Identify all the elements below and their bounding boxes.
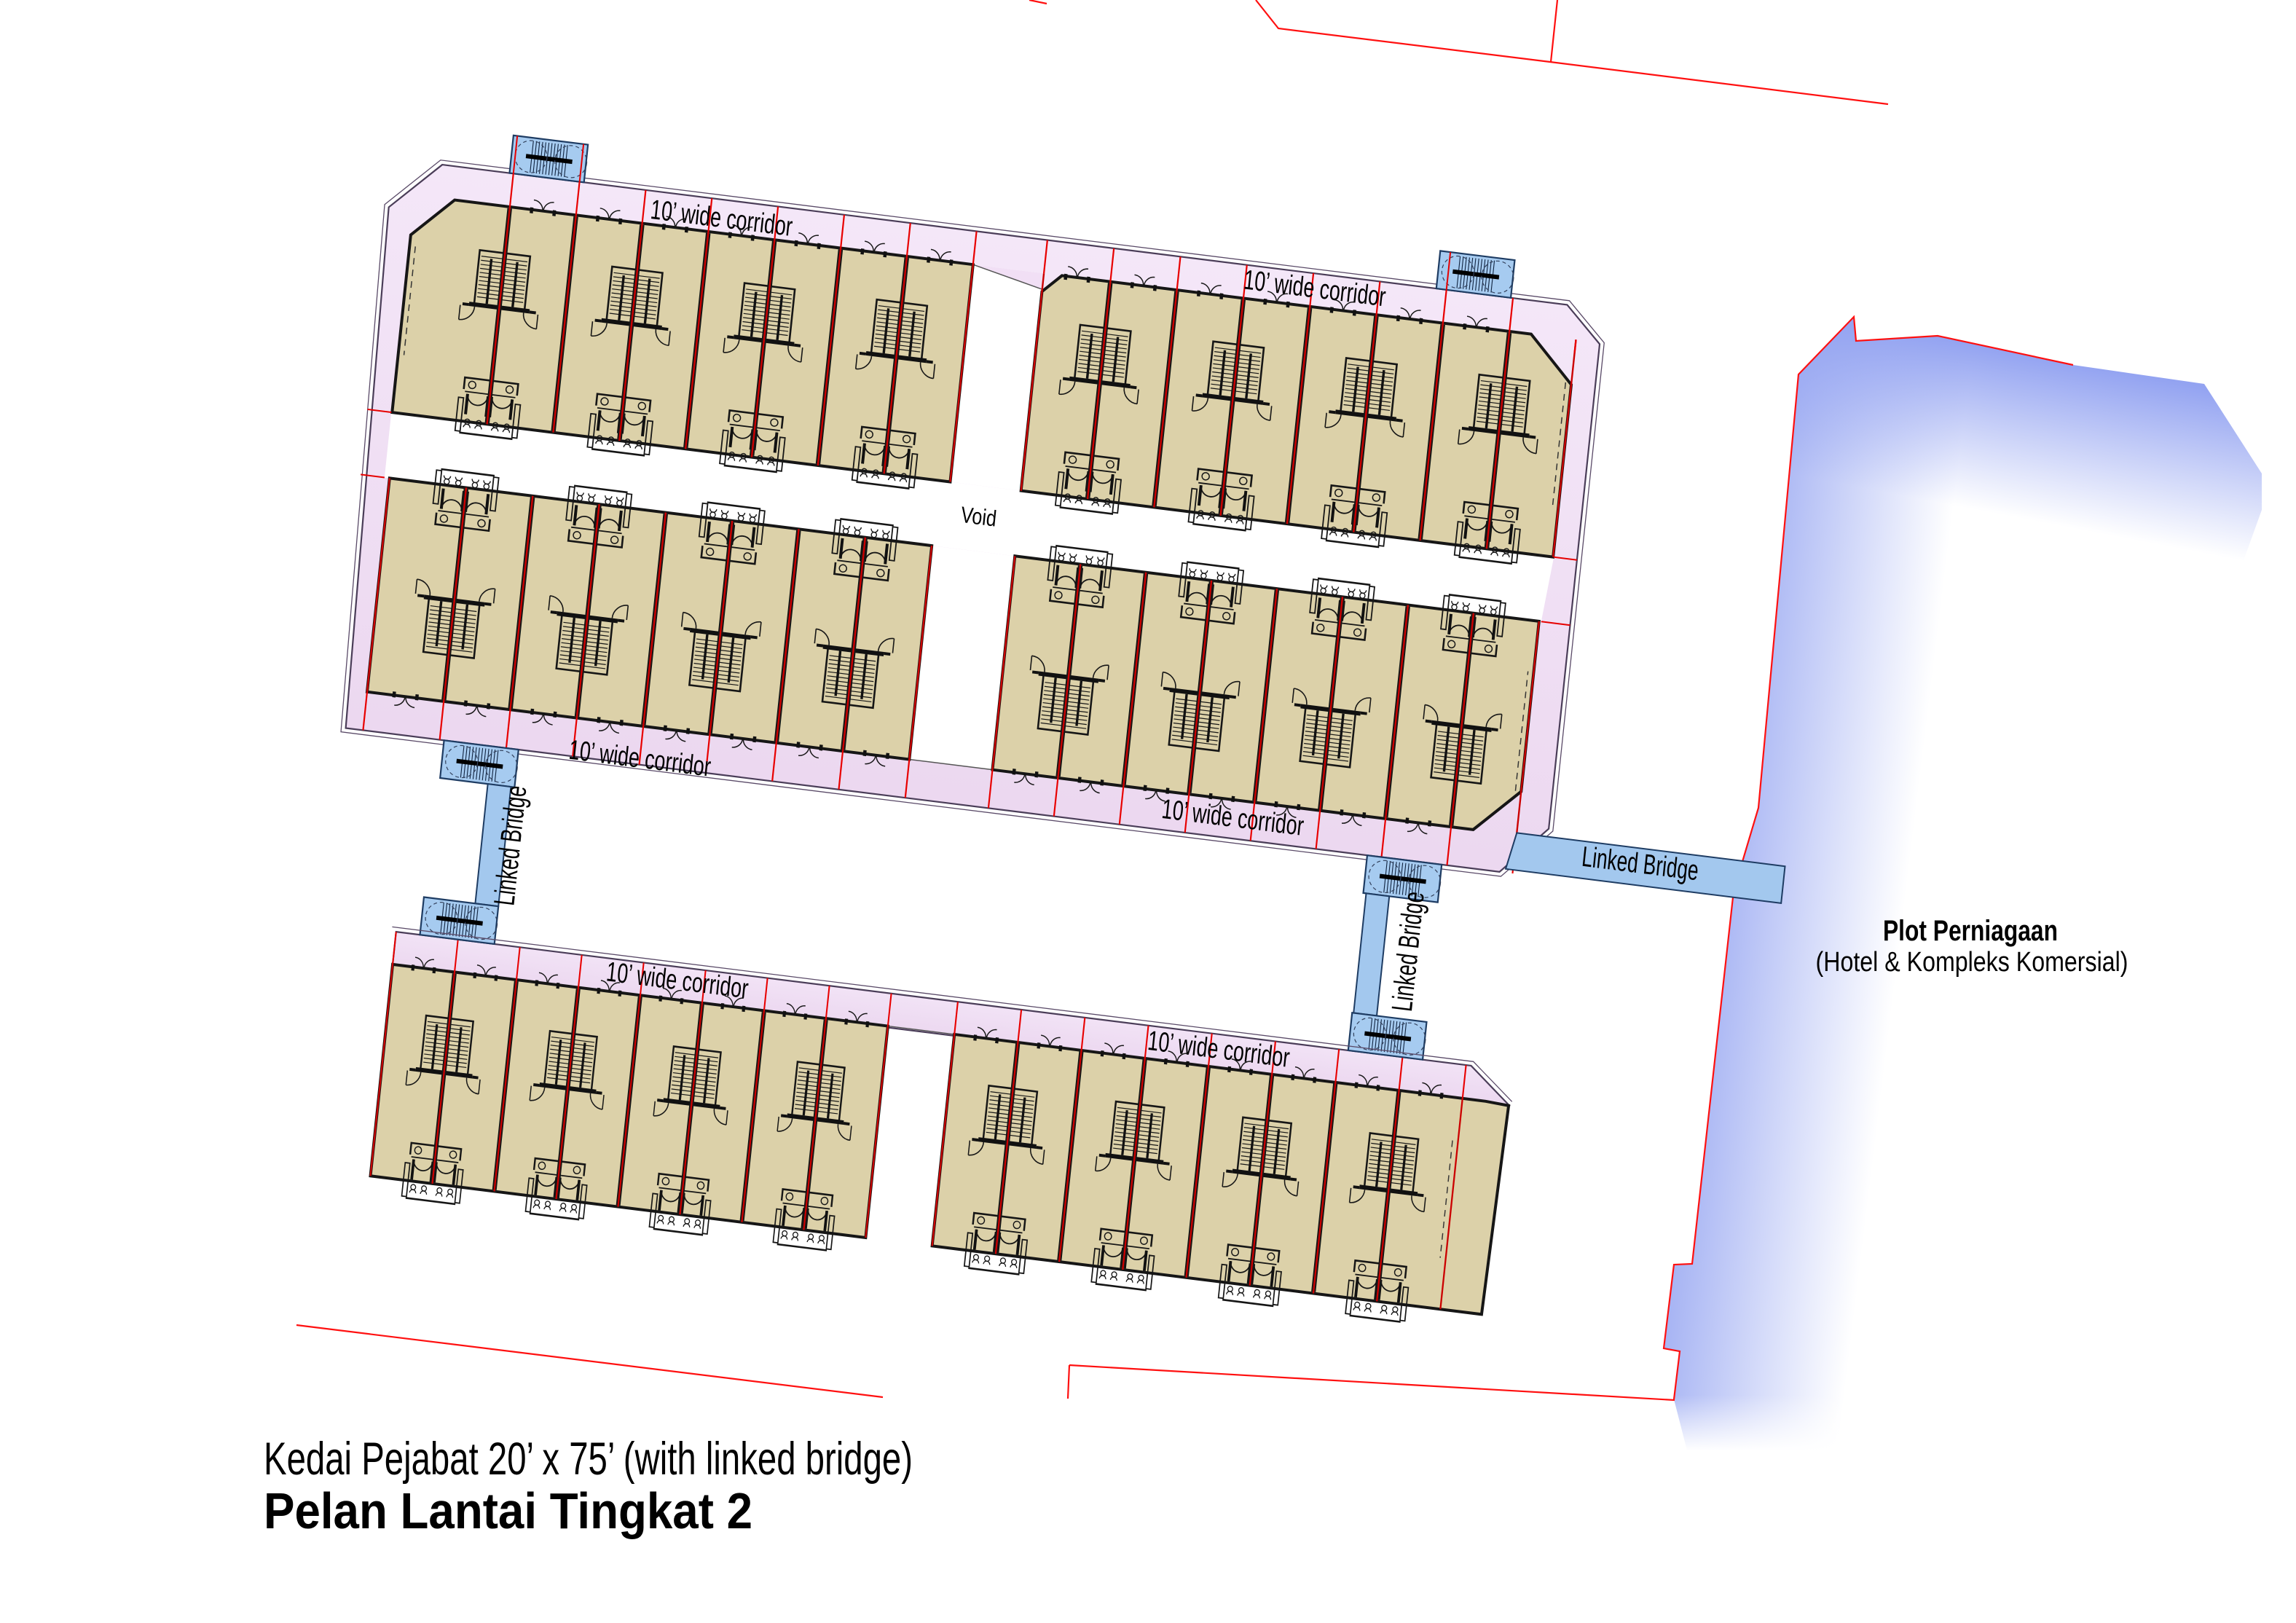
svg-text:(Hotel & Kompleks Komersial): (Hotel & Kompleks Komersial): [1816, 947, 2128, 978]
svg-text:Plot Perniagaan: Plot Perniagaan: [1883, 915, 2058, 947]
svg-text:Void: Void: [960, 502, 998, 532]
svg-text:Kedai Pejabat 20’ x 75’ (with: Kedai Pejabat 20’ x 75’ (with linked bri…: [264, 1434, 913, 1485]
svg-text:Pelan Lantai Tingkat 2: Pelan Lantai Tingkat 2: [264, 1482, 752, 1539]
